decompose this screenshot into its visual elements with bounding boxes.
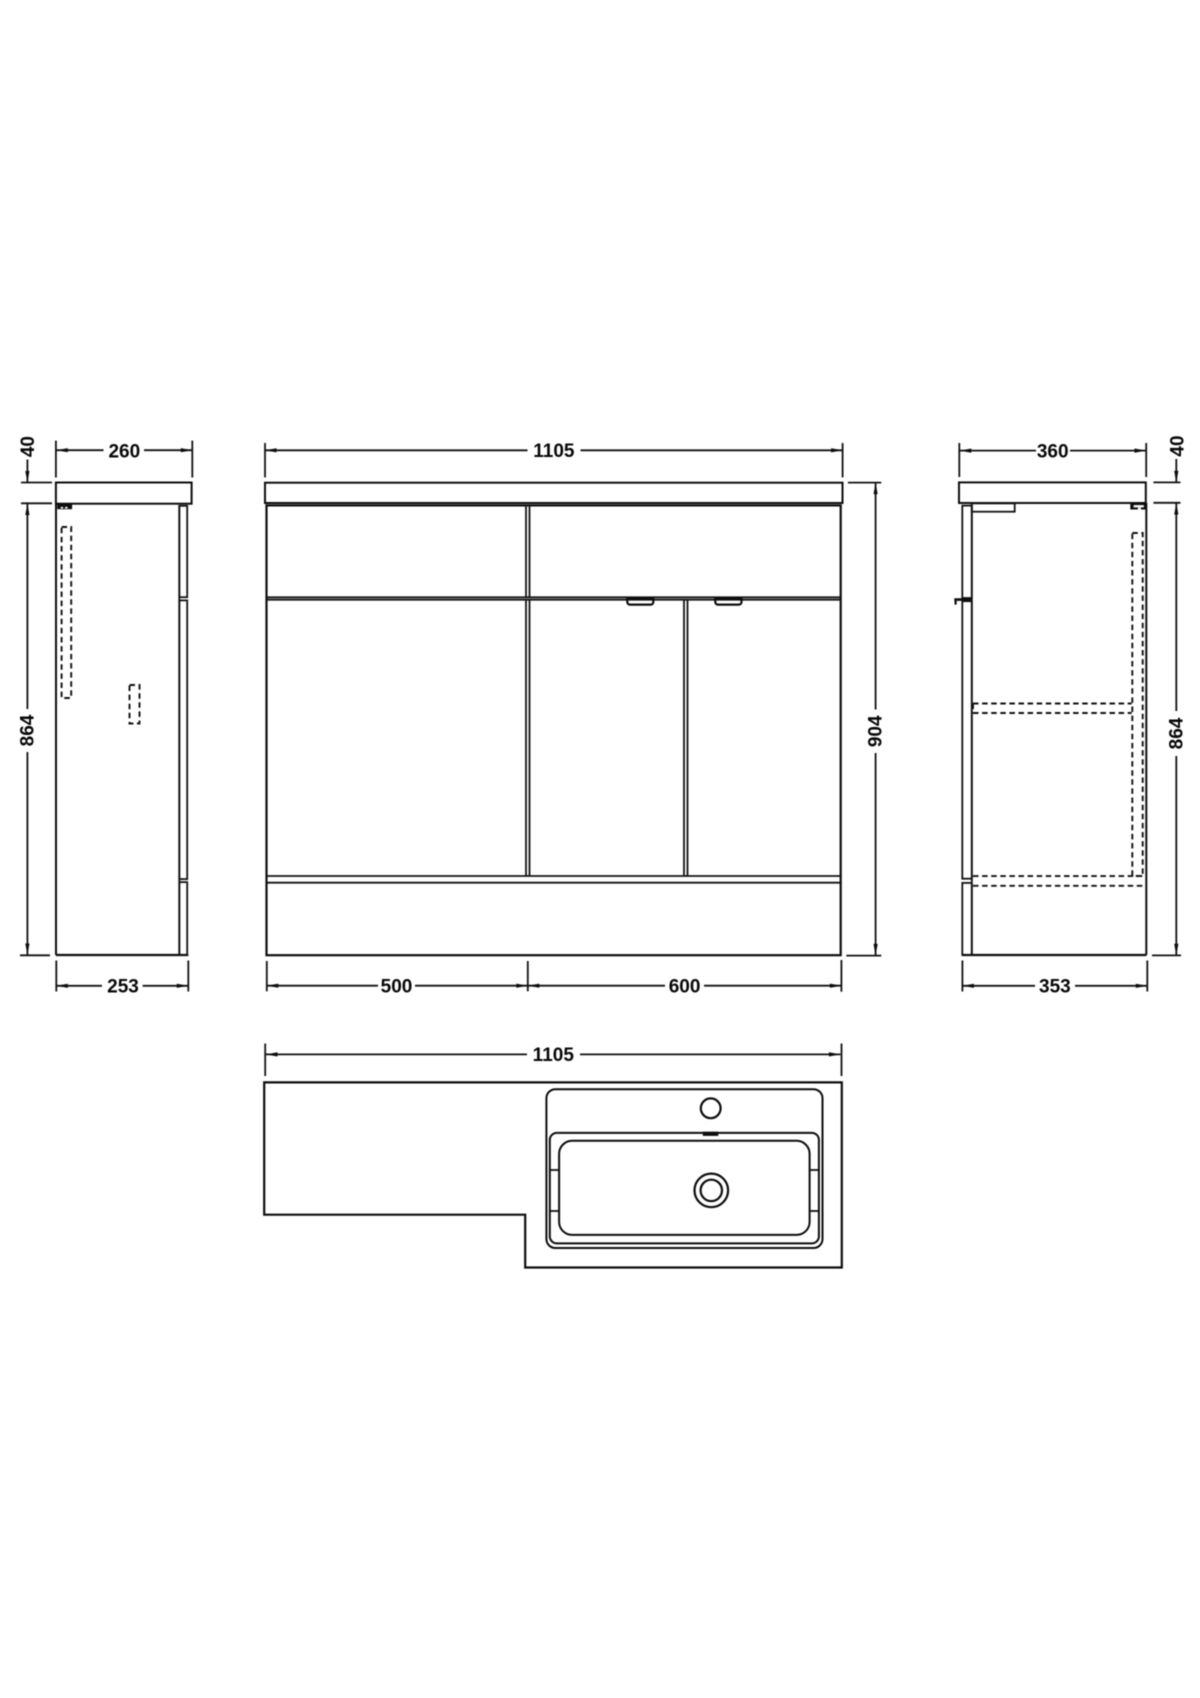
svg-text:40: 40 — [1167, 435, 1188, 456]
svg-text:40: 40 — [18, 436, 39, 457]
svg-text:1105: 1105 — [533, 441, 575, 462]
svg-text:904: 904 — [866, 715, 887, 747]
svg-text:260: 260 — [108, 441, 140, 462]
svg-text:253: 253 — [107, 977, 139, 998]
svg-text:864: 864 — [18, 714, 39, 746]
svg-text:1105: 1105 — [533, 1045, 575, 1066]
svg-text:360: 360 — [1037, 441, 1069, 462]
svg-text:353: 353 — [1039, 977, 1071, 998]
svg-text:500: 500 — [381, 977, 413, 998]
svg-text:864: 864 — [1167, 717, 1188, 749]
svg-text:600: 600 — [669, 977, 701, 998]
